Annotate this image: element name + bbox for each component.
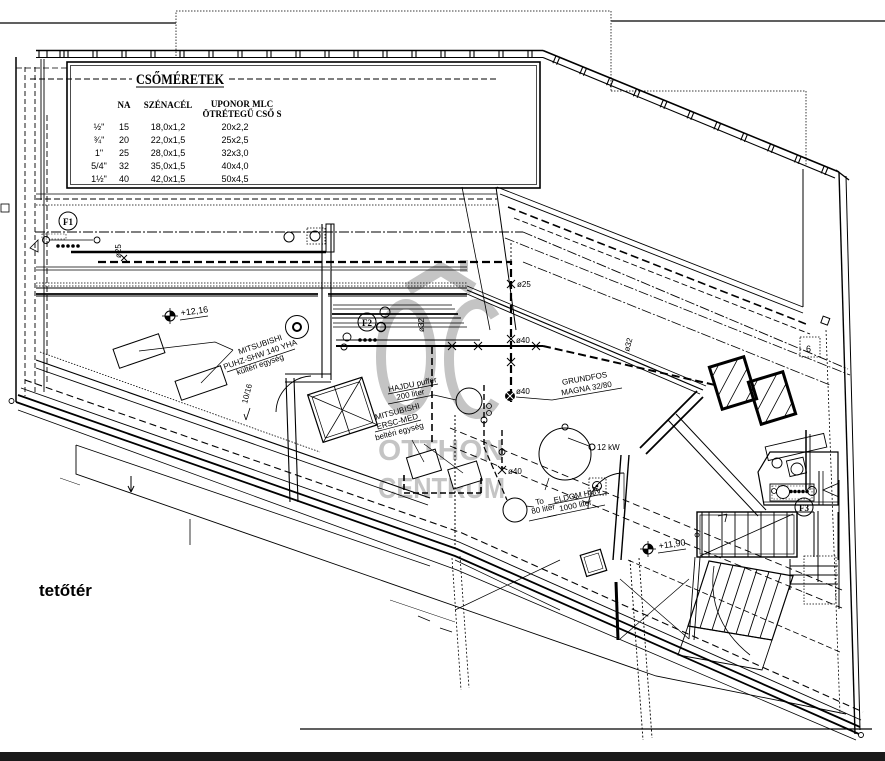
svg-text:18,0x1,2: 18,0x1,2 [151, 122, 186, 132]
svg-text:ÖTRÉTEGŰ CSŐ S: ÖTRÉTEGŰ CSŐ S [202, 109, 281, 119]
svg-text:ø25: ø25 [517, 280, 531, 289]
svg-text:¾": ¾" [94, 135, 105, 145]
svg-text:F1: F1 [63, 217, 73, 227]
svg-text:NA: NA [118, 100, 131, 110]
svg-text:20x2,2: 20x2,2 [221, 122, 248, 132]
svg-text:40x4,0: 40x4,0 [221, 161, 248, 171]
svg-text:20: 20 [119, 135, 129, 145]
svg-text:ø40: ø40 [508, 467, 522, 476]
svg-text:½": ½" [94, 122, 105, 132]
svg-text:32x3,0: 32x3,0 [221, 148, 248, 158]
svg-text:40: 40 [119, 174, 129, 184]
svg-text:CSŐMÉRETEK: CSŐMÉRETEK [136, 71, 224, 88]
svg-text:35,0x1,5: 35,0x1,5 [151, 161, 186, 171]
svg-text:15: 15 [119, 122, 129, 132]
svg-text:50x4,5: 50x4,5 [221, 174, 248, 184]
svg-text:22,0x1,5: 22,0x1,5 [151, 135, 186, 145]
svg-text:ø32: ø32 [417, 318, 426, 332]
svg-text:1": 1" [95, 148, 103, 158]
svg-text:42,0x1,5: 42,0x1,5 [151, 174, 186, 184]
svg-text:SZÉNACÉL: SZÉNACÉL [144, 100, 193, 110]
svg-text:25x2,5: 25x2,5 [221, 135, 248, 145]
svg-text:32: 32 [119, 161, 129, 171]
svg-text:28,0x1,5: 28,0x1,5 [151, 148, 186, 158]
svg-text:UPONOR MLC: UPONOR MLC [211, 99, 273, 109]
svg-text:CENTRUM: CENTRUM [378, 473, 505, 505]
svg-text:6: 6 [806, 344, 811, 354]
svg-text:25: 25 [119, 148, 129, 158]
svg-text:1½": 1½" [91, 174, 107, 184]
svg-text:12 kW: 12 kW [597, 443, 620, 452]
svg-text:5/4": 5/4" [91, 161, 107, 171]
svg-text:tetőtér: tetőtér [39, 581, 92, 600]
svg-text:ø40: ø40 [516, 387, 530, 396]
svg-text:ø40: ø40 [516, 336, 530, 345]
